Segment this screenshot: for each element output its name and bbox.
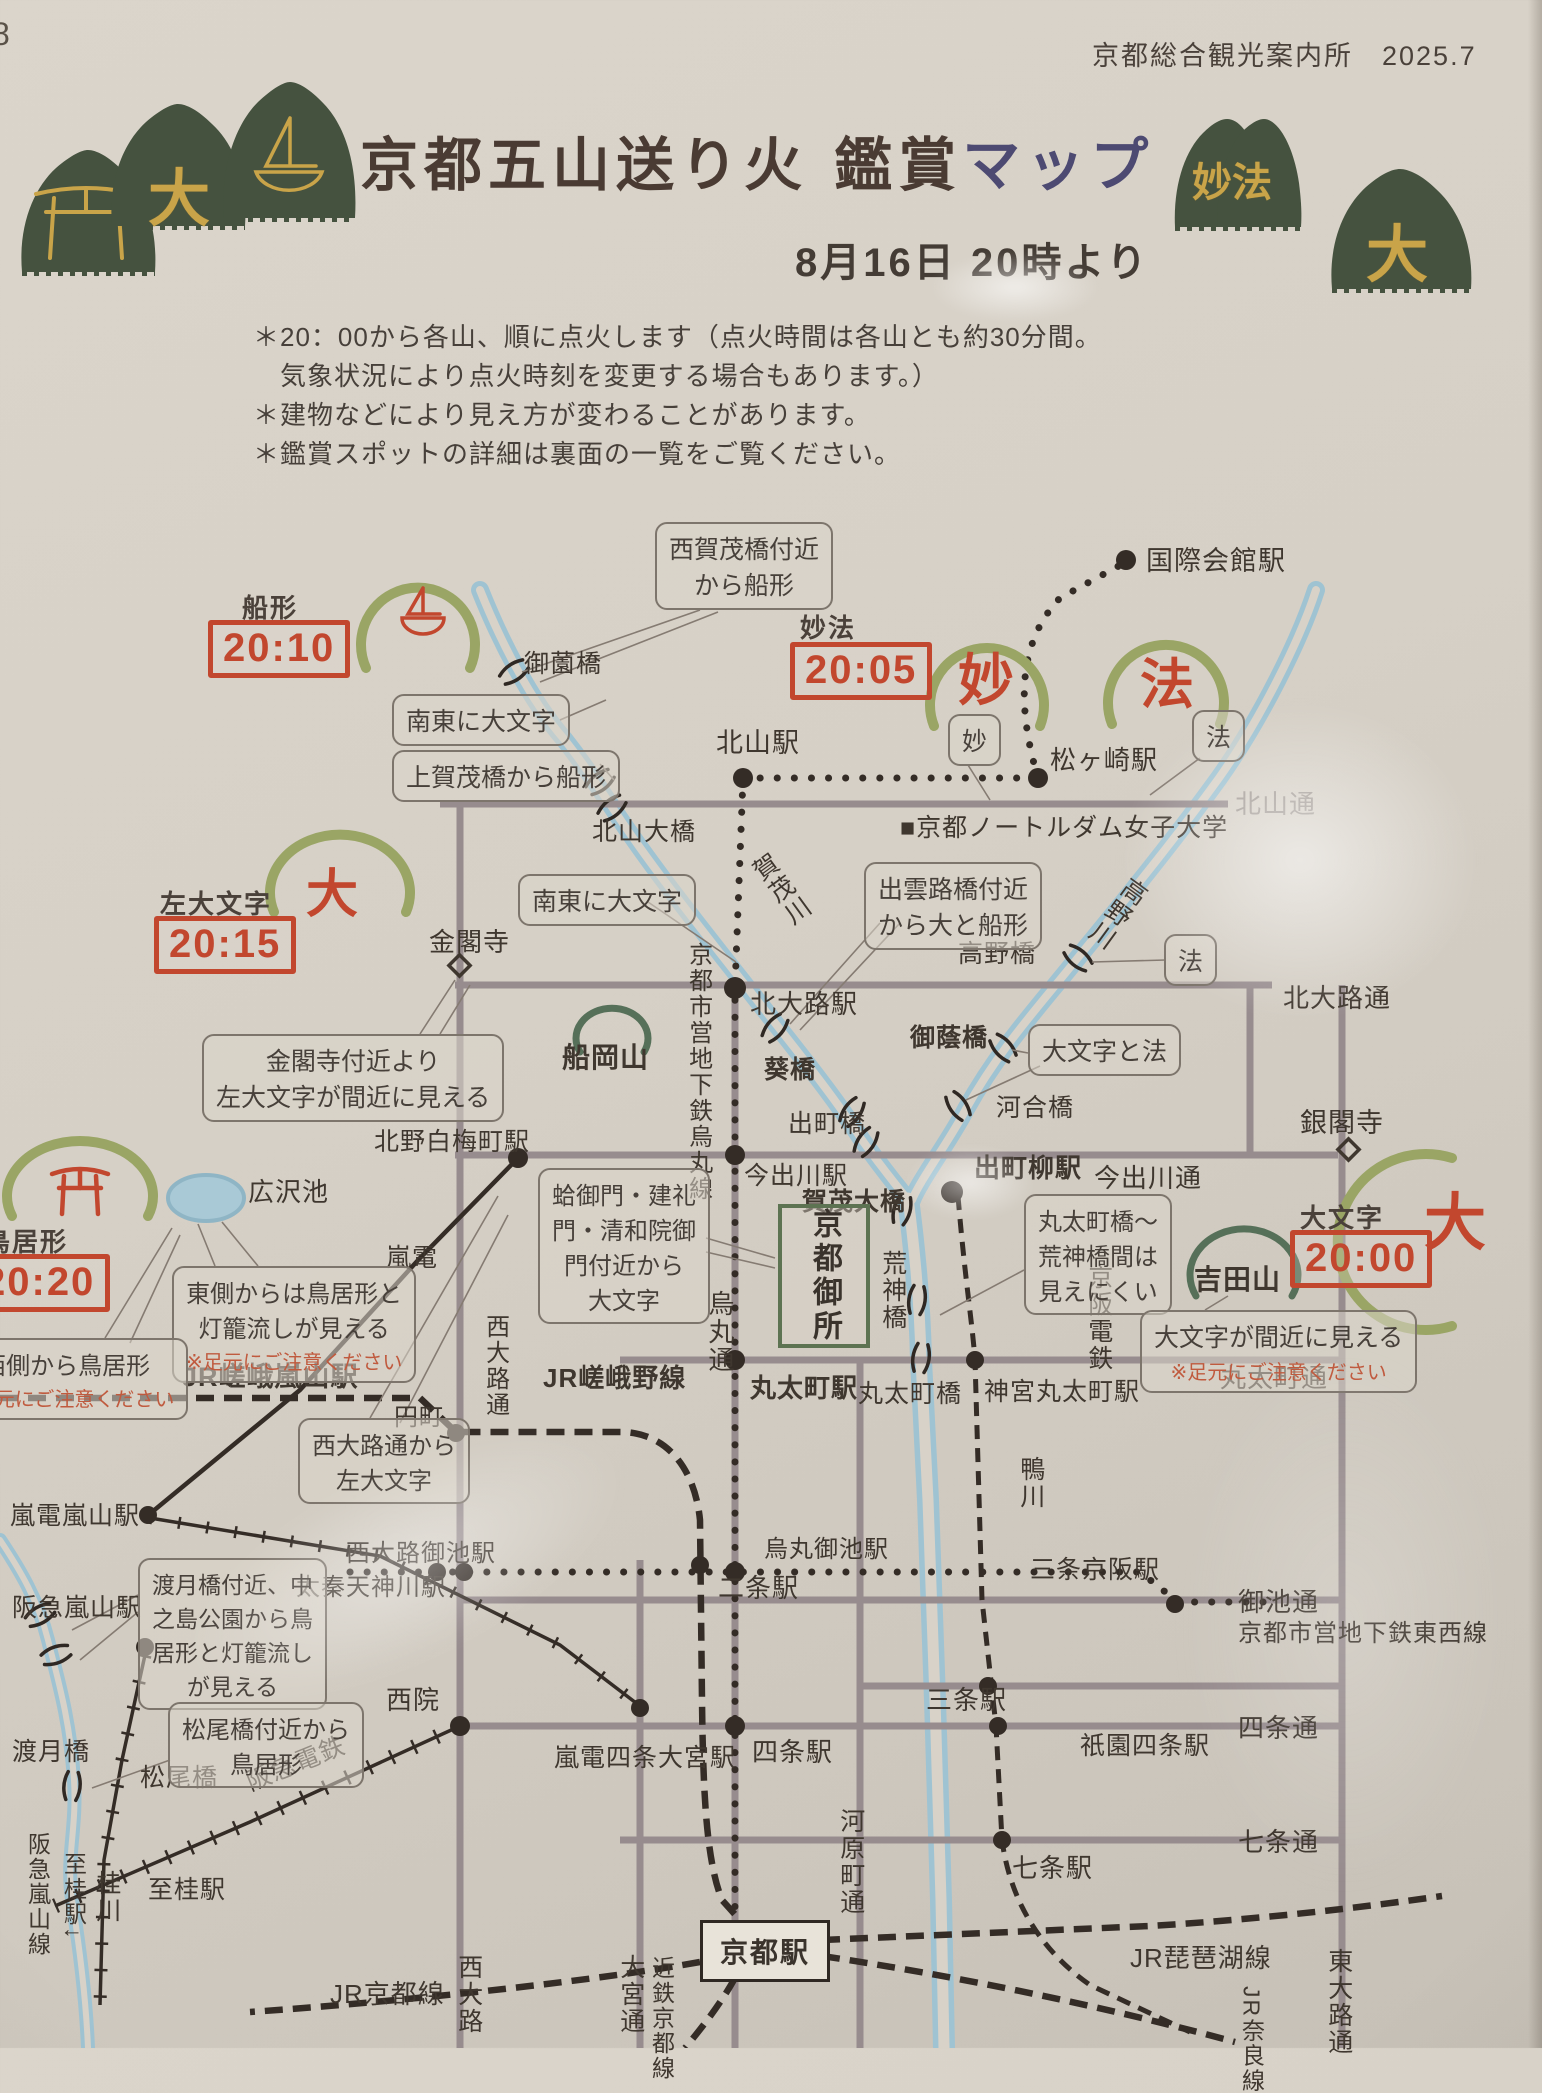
mountain-char-ho-char: 法 (1140, 640, 1194, 719)
callout-ho-spot-1: 法 (1192, 710, 1245, 762)
callout-kamigamo-spot: 上賀茂橋から船形 (392, 750, 620, 802)
callout-nishioji-spot-line-1: 西大路通から (312, 1426, 456, 1461)
label-karasuma-oike-sta: 烏丸御池駅 (764, 1536, 889, 1564)
label-jr-sagano-line: JR嵯峨野線 (543, 1364, 686, 1394)
mountain-char-dai-left-char: 大 (306, 852, 358, 927)
callout-east-torii-line-2: 灯籠流しが見える (186, 1309, 402, 1344)
label-jr-biwako-line: JR琵琶湖線 (1130, 1944, 1272, 1974)
callout-togetsukyo-spot: 渡月橋付近、中之島公園から鳥居形と灯籠流しが見える (138, 1558, 327, 1710)
title-main: 京都五山送り火 鑑賞 (360, 131, 962, 199)
label-misonobashi: 御薗橋 (524, 650, 602, 679)
label-shichijo-dori: 七条通 (1238, 1828, 1319, 1858)
label-matsugasaki-sta: 松ヶ崎駅 (1050, 746, 1158, 776)
callout-kinkakuji-spot: 金閣寺付近より左大文字が間近に見える (202, 1034, 504, 1122)
label-sanjo-keihan-sta: 三条京阪駅 (1030, 1556, 1160, 1585)
label-kitano-hakubaicho-sta: 北野白梅町駅 (374, 1128, 530, 1157)
title-accent: マップ (962, 131, 1154, 199)
callout-daimonji-to-ho-line-1: 大文字と法 (1042, 1032, 1167, 1068)
label-kintetsu-kyoto-line: 近鉄京都線 (648, 1956, 674, 2081)
callout-izumoji-spot-line-1: 出雲路橋付近 (878, 870, 1028, 906)
label-kitaoji-dori: 北大路通 (1283, 984, 1391, 1014)
box-kyoto-gosho: 京都御所 (778, 1204, 870, 1348)
label-shijo-sta: 四条駅 (752, 1738, 833, 1768)
photo-of-gozan-okuribi-map: 8 京都総合観光案内所 2025.7 京都五山送り火 鑑賞マップ 8月16日 2… (0, 0, 1542, 2048)
callout-izumoji-spot-line-2: から大と船形 (878, 906, 1028, 942)
header-char-myoho-gold: 妙法 (1192, 150, 1272, 208)
label-omiya-dori: 大宮通 (616, 1954, 645, 2035)
label-hankyu-arashiyama-line: 阪急嵐山線 (24, 1832, 50, 1957)
label-shichijo-sta: 七条駅 (1012, 1854, 1093, 1884)
label-to-katsura: 至桂駅 (148, 1876, 226, 1905)
callout-west-torii-note: ※足元にご注意ください (0, 1383, 174, 1412)
callout-hamaguri-gomon: 蛤御門・建礼門・清和院御門付近から大文字 (538, 1168, 710, 1324)
note-line-3: ＊建物などにより見え方が変わることがあります。 (253, 396, 1102, 435)
label-kitaoji-sta: 北大路駅 (750, 990, 858, 1020)
label-jingu-marutamachi-sta: 神宮丸太町駅 (984, 1378, 1140, 1407)
notes-block: ＊20：00から各山、順に点火します（点火時間は各山とも約30分間。 気象状況に… (253, 318, 1102, 474)
box-kyoto-gosho-label: 京都御所 (802, 1208, 846, 1344)
label-shijo-dori: 四条通 (1238, 1714, 1319, 1744)
label-notredame-univ: ■京都ノートルダム女子大学 (900, 814, 1228, 843)
callout-togetsukyo-spot-line-3: 居形と灯籠流し (152, 1634, 313, 1668)
label-kamogawa-s: 鴨川 (1016, 1456, 1045, 1510)
hirosawa-pond (168, 1175, 244, 1221)
callout-hamaguri-gomon-line-4: 大文字 (552, 1281, 696, 1316)
label-nishioji-bottom: 西大路 (454, 1954, 483, 2035)
photo-edge-shadow (1528, 0, 1542, 2048)
callout-kinkakuji-spot-line-1: 金閣寺付近より (216, 1042, 490, 1078)
label-ginkakuji: 銀閣寺 (1300, 1108, 1384, 1139)
label-randen-arashiyama-sta: 嵐電嵐山駅 (10, 1502, 140, 1531)
callout-nanto-daimonji-2-line-1: 南東に大文字 (532, 882, 682, 918)
callout-nishigamo-spot: 西賀茂橋付近から船形 (655, 522, 833, 610)
label-demachibashi: 出町橋 (788, 1110, 866, 1139)
label-kinkakuji: 金閣寺 (429, 928, 510, 958)
callout-daimonji-to-ho: 大文字と法 (1028, 1024, 1181, 1076)
callout-nishigamo-spot-line-2: から船形 (669, 566, 819, 602)
callout-daimonji-up-close-note: ※足元にご注意ください (1154, 1356, 1403, 1385)
callout-ho-spot-2: 法 (1164, 934, 1217, 986)
label-kojinbashi: 荒神橋 (878, 1250, 907, 1331)
callout-myo-spot: 妙 (948, 714, 1001, 766)
box-kyoto-station-label: 京都駅 (720, 1931, 810, 1971)
callout-nishioji-spot-line-2: 左大文字 (312, 1461, 456, 1496)
label-kitayama-ohashi: 北山大橋 (592, 818, 696, 847)
label-gion-shijo-sta: 祇園四条駅 (1080, 1732, 1210, 1761)
stamp-time-daimonji: 20:00 (1290, 1230, 1432, 1288)
note-line-4: ＊鑑賞スポットの詳細は裏面の一覧をご覧ください。 (253, 435, 1102, 474)
label-kitayama-sta: 北山駅 (716, 728, 800, 759)
label-imadegawa-dori: 今出川通 (1094, 1164, 1202, 1194)
label-higashioji-dori: 東大路通 (1324, 1948, 1353, 2056)
callout-kinkakuji-spot-line-2: 左大文字が間近に見える (216, 1078, 490, 1114)
label-tozai-subway: 京都市営地下鉄東西線 (1238, 1620, 1488, 1648)
callout-matsuobashi-spot-line-1: 松尾橋付近から (182, 1710, 350, 1745)
header-char-dai-left-gold: 大 (148, 148, 210, 238)
stamp-name-myoho: 妙法 (800, 608, 856, 645)
callout-marutamachi-kojin: 丸太町橋〜荒神橋間は見えにくい (1024, 1194, 1172, 1315)
note-line-2: 気象状況により点火時刻を変更する場合もあります。） (253, 357, 1102, 396)
label-saiin-sta: 西院 (386, 1686, 440, 1716)
label-hankyu-arashiyama-sta: 阪急嵐山駅 (12, 1594, 142, 1623)
callout-nishigamo-spot-line-1: 西賀茂橋付近 (669, 530, 819, 566)
callout-east-torii: 東側からは鳥居形と灯籠流しが見える※足元にご注意ください (172, 1266, 416, 1383)
label-funaokayama: 船岡山 (562, 1042, 649, 1074)
callout-togetsukyo-spot-line-2: 之島公園から鳥 (152, 1600, 313, 1634)
label-katsuragawa: 桂川 (92, 1870, 121, 1924)
torii-icon (52, 1169, 108, 1214)
callout-hamaguri-gomon-line-3: 門付近から (552, 1246, 696, 1281)
callout-togetsukyo-spot-line-4: が見える (152, 1668, 313, 1702)
callout-ho-spot-1-line-1: 法 (1206, 718, 1231, 754)
stamp-time-funagata: 20:10 (208, 620, 350, 678)
label-randen-shijo-omiya-sta: 嵐電四条大宮駅 (554, 1744, 736, 1773)
credit-line: 京都総合観光案内所 2025.7 (1092, 34, 1477, 73)
callout-marutamachi-kojin-line-1: 丸太町橋〜 (1038, 1202, 1158, 1237)
label-to-katsura-v: 至桂駅↓ (60, 1852, 86, 1941)
label-jr-kyoto-line: JR京都線 (330, 1980, 445, 2010)
label-imadegawa-sta: 今出川駅 (744, 1162, 848, 1191)
label-hirosawa-ike: 広沢池 (248, 1178, 329, 1208)
callout-izumoji-spot: 出雲路橋付近から大と船形 (864, 862, 1042, 950)
callout-marutamachi-kojin-line-2: 荒神橋間は (1038, 1237, 1158, 1272)
callout-ho-spot-2-line-1: 法 (1178, 942, 1203, 978)
callout-nanto-daimonji-2: 南東に大文字 (518, 874, 696, 926)
label-togetsukyo: 渡月橋 (12, 1738, 90, 1767)
callout-west-torii-line-1: 西側から鳥居形 (0, 1346, 174, 1381)
label-jr-nara-line: JR奈良線 (1238, 1986, 1264, 2093)
note-line-1: ＊20：00から各山、順に点火します（点火時間は各山とも約30分間。 (253, 318, 1102, 357)
page-corner-number: 8 (0, 16, 10, 53)
callout-nishioji-spot: 西大路通から左大文字 (298, 1418, 470, 1504)
callout-west-torii: 西側から鳥居形※足元にご注意ください (0, 1338, 188, 1420)
page-title: 京都五山送り火 鑑賞マップ (360, 118, 1154, 202)
callout-marutamachi-kojin-line-3: 見えにくい (1038, 1272, 1158, 1307)
label-kawaramachi-dori: 河原町通 (836, 1808, 865, 1916)
box-kyoto-station: 京都駅 (700, 1920, 830, 1982)
label-marutamachi-sta: 丸太町駅 (750, 1374, 858, 1404)
callout-matsuobashi-spot: 松尾橋付近から鳥居形 (168, 1702, 364, 1788)
funagata-mount-icon (223, 82, 355, 218)
label-mikagebashi: 御蔭橋 (910, 1024, 988, 1053)
label-kokusaikaikan-sta: 国際会館駅 (1146, 546, 1286, 577)
stamp-time-myoho: 20:05 (790, 642, 932, 700)
label-yoshidayama: 吉田山 (1194, 1264, 1281, 1296)
callout-daimonji-up-close: 大文字が間近に見える※足元にご注意ください (1140, 1310, 1417, 1393)
label-nishioji-dori: 西大路通 (481, 1314, 509, 1418)
label-kitayama-dori: 北山通 (1235, 790, 1316, 820)
label-marutamachibashi: 丸太町橋 (858, 1380, 962, 1409)
mountain-char-myo-char: 妙 (958, 636, 1014, 717)
event-date: 8月16日 20時より (795, 230, 1150, 288)
label-aoibashi: 葵橋 (764, 1056, 816, 1085)
callout-nanto-daimonji-1-line-1: 南東に大文字 (406, 702, 556, 738)
roads (440, 804, 1342, 2048)
callout-hamaguri-gomon-line-1: 蛤御門・建礼 (552, 1176, 696, 1211)
callout-hamaguri-gomon-line-2: 門・清和院御 (552, 1211, 696, 1246)
label-karasuma-subway: 京都市営地下鉄烏丸線 (684, 942, 712, 1202)
label-sanjo-sta: 三条駅 (926, 1686, 1007, 1716)
label-nishioji-oike-sta: 西大路御池駅 (346, 1540, 496, 1568)
label-kawaibashi: 河合橋 (996, 1094, 1074, 1123)
header-char-dai-right-gold: 大 (1366, 204, 1428, 294)
callout-matsuobashi-spot-line-2: 鳥居形 (182, 1745, 350, 1780)
callout-myo-spot-line-1: 妙 (962, 722, 987, 758)
callout-daimonji-up-close-line-1: 大文字が間近に見える (1154, 1318, 1403, 1354)
callout-togetsukyo-spot-line-1: 渡月橋付近、中 (152, 1566, 313, 1600)
callout-nanto-daimonji-1: 南東に大文字 (392, 694, 570, 746)
label-demachiyanagi-sta: 出町柳駅 (974, 1154, 1082, 1184)
callout-east-torii-line-1: 東側からは鳥居形と (186, 1274, 402, 1309)
label-oike-dori: 御池通 (1238, 1588, 1319, 1618)
stamp-time-toriigata: 20:20 (0, 1254, 110, 1312)
callout-east-torii-note: ※足元にご注意ください (186, 1346, 402, 1375)
label-nijo-sta: 二条駅 (718, 1574, 799, 1604)
callout-kamigamo-spot-line-1: 上賀茂橋から船形 (406, 758, 606, 794)
mountain-char-dai-right-char: 大 (1424, 1172, 1486, 1262)
stamp-time-hidari-daimonji: 20:15 (154, 916, 296, 974)
